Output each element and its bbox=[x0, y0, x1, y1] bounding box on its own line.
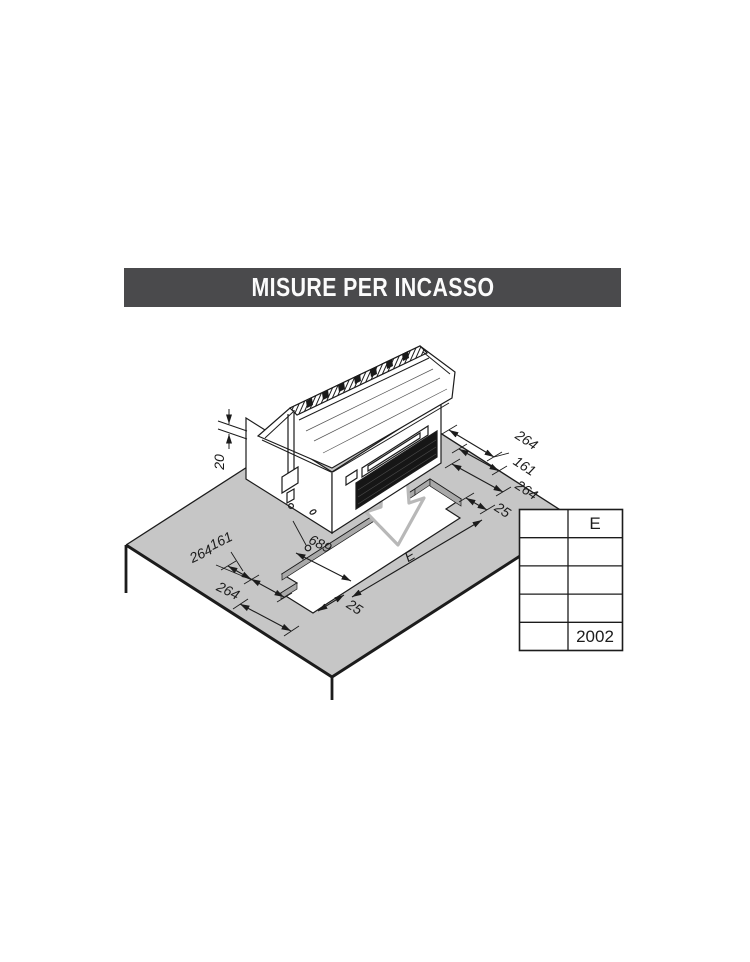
ext-line-20-bottom bbox=[218, 429, 247, 439]
page-title: MISURE PER INCASSO bbox=[251, 273, 494, 303]
dim-label-161-right: 161 bbox=[511, 453, 539, 479]
ext-tick bbox=[442, 425, 457, 434]
title-bar: MISURE PER INCASSO bbox=[124, 268, 621, 307]
spec-table: E 2002 bbox=[520, 510, 623, 651]
dim-label-264-right-a: 264 bbox=[512, 426, 541, 453]
dim-label-20: 20 bbox=[211, 454, 227, 471]
ext-line-20-top bbox=[218, 421, 247, 431]
technical-diagram: MISURE PER INCASSO bbox=[0, 0, 750, 962]
ext-tick bbox=[487, 452, 502, 461]
diagram-page: MISURE PER INCASSO bbox=[0, 0, 750, 962]
table-header-e: E bbox=[589, 514, 600, 533]
dimension-20 bbox=[218, 409, 247, 449]
table-value-2002: 2002 bbox=[576, 627, 614, 646]
